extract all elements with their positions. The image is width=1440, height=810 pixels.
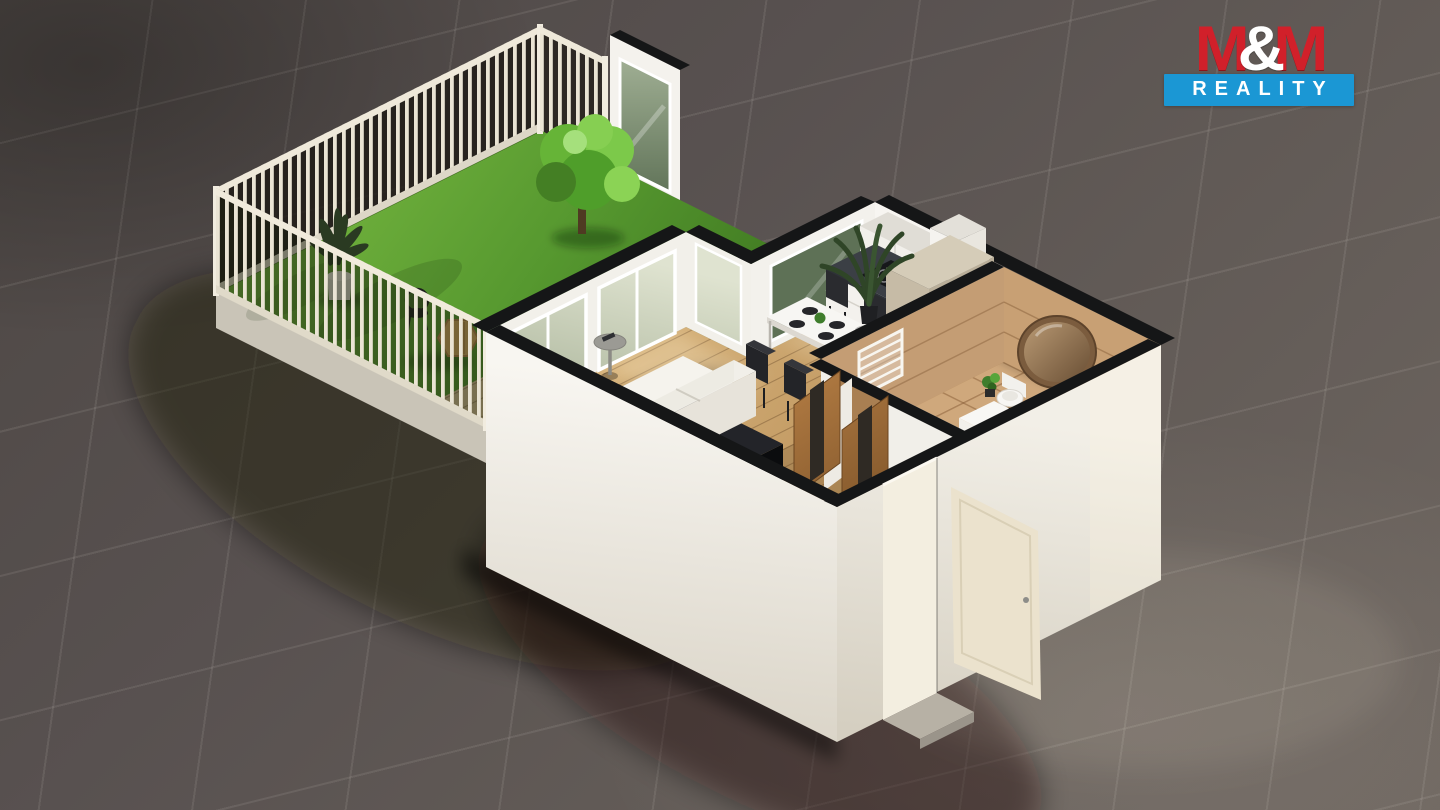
floorplan-render [0,0,1440,810]
plate [829,321,845,329]
plate [789,320,805,328]
scene: M&M REALITY [0,0,1440,810]
door-handle [1023,597,1029,603]
logo-ampersand: & [1238,12,1281,83]
table-plant [815,313,826,324]
entry-doorway [883,458,937,720]
plate [818,332,834,340]
plate [802,307,818,315]
mm-reality-logo: M&M REALITY [1164,18,1354,106]
logo-mm-text: M&M [1164,19,1354,77]
logo-m2: M [1273,12,1323,83]
tree-trunk [578,206,586,234]
